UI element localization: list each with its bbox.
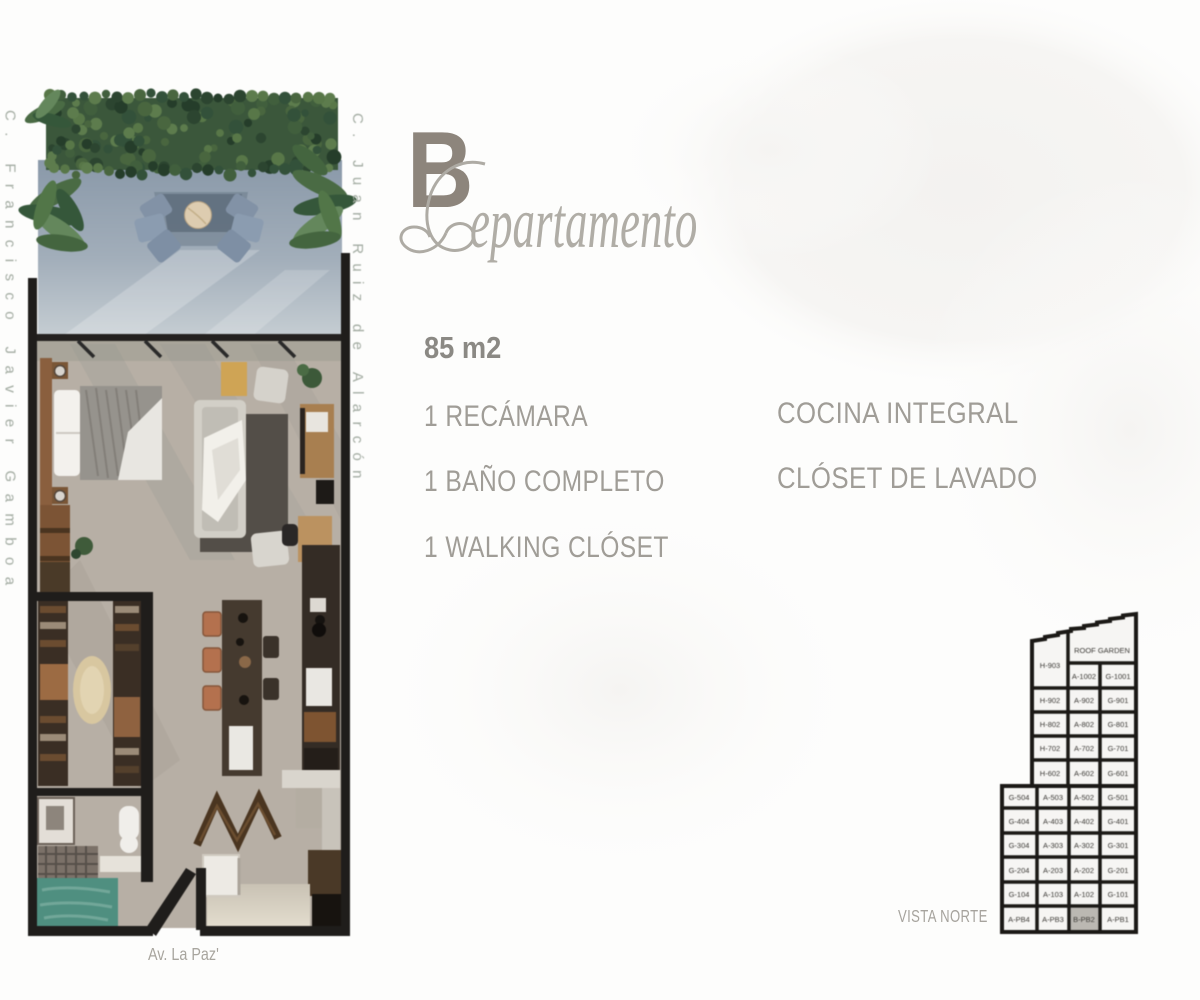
svg-text:H-902: H-902 <box>1040 696 1060 705</box>
svg-text:A-302: A-302 <box>1074 841 1094 850</box>
svg-text:A-503: A-503 <box>1043 793 1063 802</box>
svg-text:A-303: A-303 <box>1043 841 1063 850</box>
svg-text:A-502: A-502 <box>1074 793 1094 802</box>
svg-text:A-802: A-802 <box>1074 720 1094 729</box>
svg-text:G-101: G-101 <box>1108 890 1129 899</box>
svg-text:A-402: A-402 <box>1074 817 1094 826</box>
svg-text:A-103: A-103 <box>1043 890 1063 899</box>
svg-text:A-1002: A-1002 <box>1072 672 1096 681</box>
svg-text:G-901: G-901 <box>1108 696 1129 705</box>
svg-text:G-701: G-701 <box>1108 744 1129 753</box>
svg-text:G-201: G-201 <box>1108 866 1129 875</box>
svg-text:epartamento: epartamento <box>470 183 697 264</box>
svg-text:A-602: A-602 <box>1074 769 1094 778</box>
svg-text:A-PB3: A-PB3 <box>1042 915 1064 924</box>
svg-text:H-903: H-903 <box>1040 661 1060 670</box>
svg-text:A-403: A-403 <box>1043 817 1063 826</box>
svg-text:G-204: G-204 <box>1009 866 1030 875</box>
svg-text:A-102: A-102 <box>1074 890 1094 899</box>
svg-text:G-104: G-104 <box>1009 890 1030 899</box>
svg-text:G-404: G-404 <box>1009 817 1030 826</box>
svg-text:ROOF GARDEN: ROOF GARDEN <box>1074 646 1130 655</box>
svg-text:G-501: G-501 <box>1108 793 1129 802</box>
svg-text:G-504: G-504 <box>1009 793 1030 802</box>
svg-text:H-802: H-802 <box>1040 720 1060 729</box>
svg-text:C. Juan Ruiz de Alarcón: C. Juan Ruiz de Alarcón <box>349 113 366 488</box>
svg-text:B-PB2: B-PB2 <box>1073 915 1095 924</box>
svg-text:G-301: G-301 <box>1108 841 1129 850</box>
svg-text:C. Francisco Javier Gamboa: C. Francisco Javier Gamboa <box>2 110 19 596</box>
svg-text:H-702: H-702 <box>1040 744 1060 753</box>
svg-text:G-401: G-401 <box>1108 817 1129 826</box>
svg-text:A-902: A-902 <box>1074 696 1094 705</box>
svg-text:G-304: G-304 <box>1009 841 1030 850</box>
svg-text:A-203: A-203 <box>1043 866 1063 875</box>
svg-text:A-PB4: A-PB4 <box>1008 915 1030 924</box>
svg-text:A-702: A-702 <box>1074 744 1094 753</box>
svg-text:G-601: G-601 <box>1108 769 1129 778</box>
svg-text:H-602: H-602 <box>1040 769 1060 778</box>
svg-text:G-1001: G-1001 <box>1105 672 1130 681</box>
svg-text:A-202: A-202 <box>1074 866 1094 875</box>
svg-text:G-801: G-801 <box>1108 720 1129 729</box>
svg-text:A-PB1: A-PB1 <box>1107 915 1129 924</box>
